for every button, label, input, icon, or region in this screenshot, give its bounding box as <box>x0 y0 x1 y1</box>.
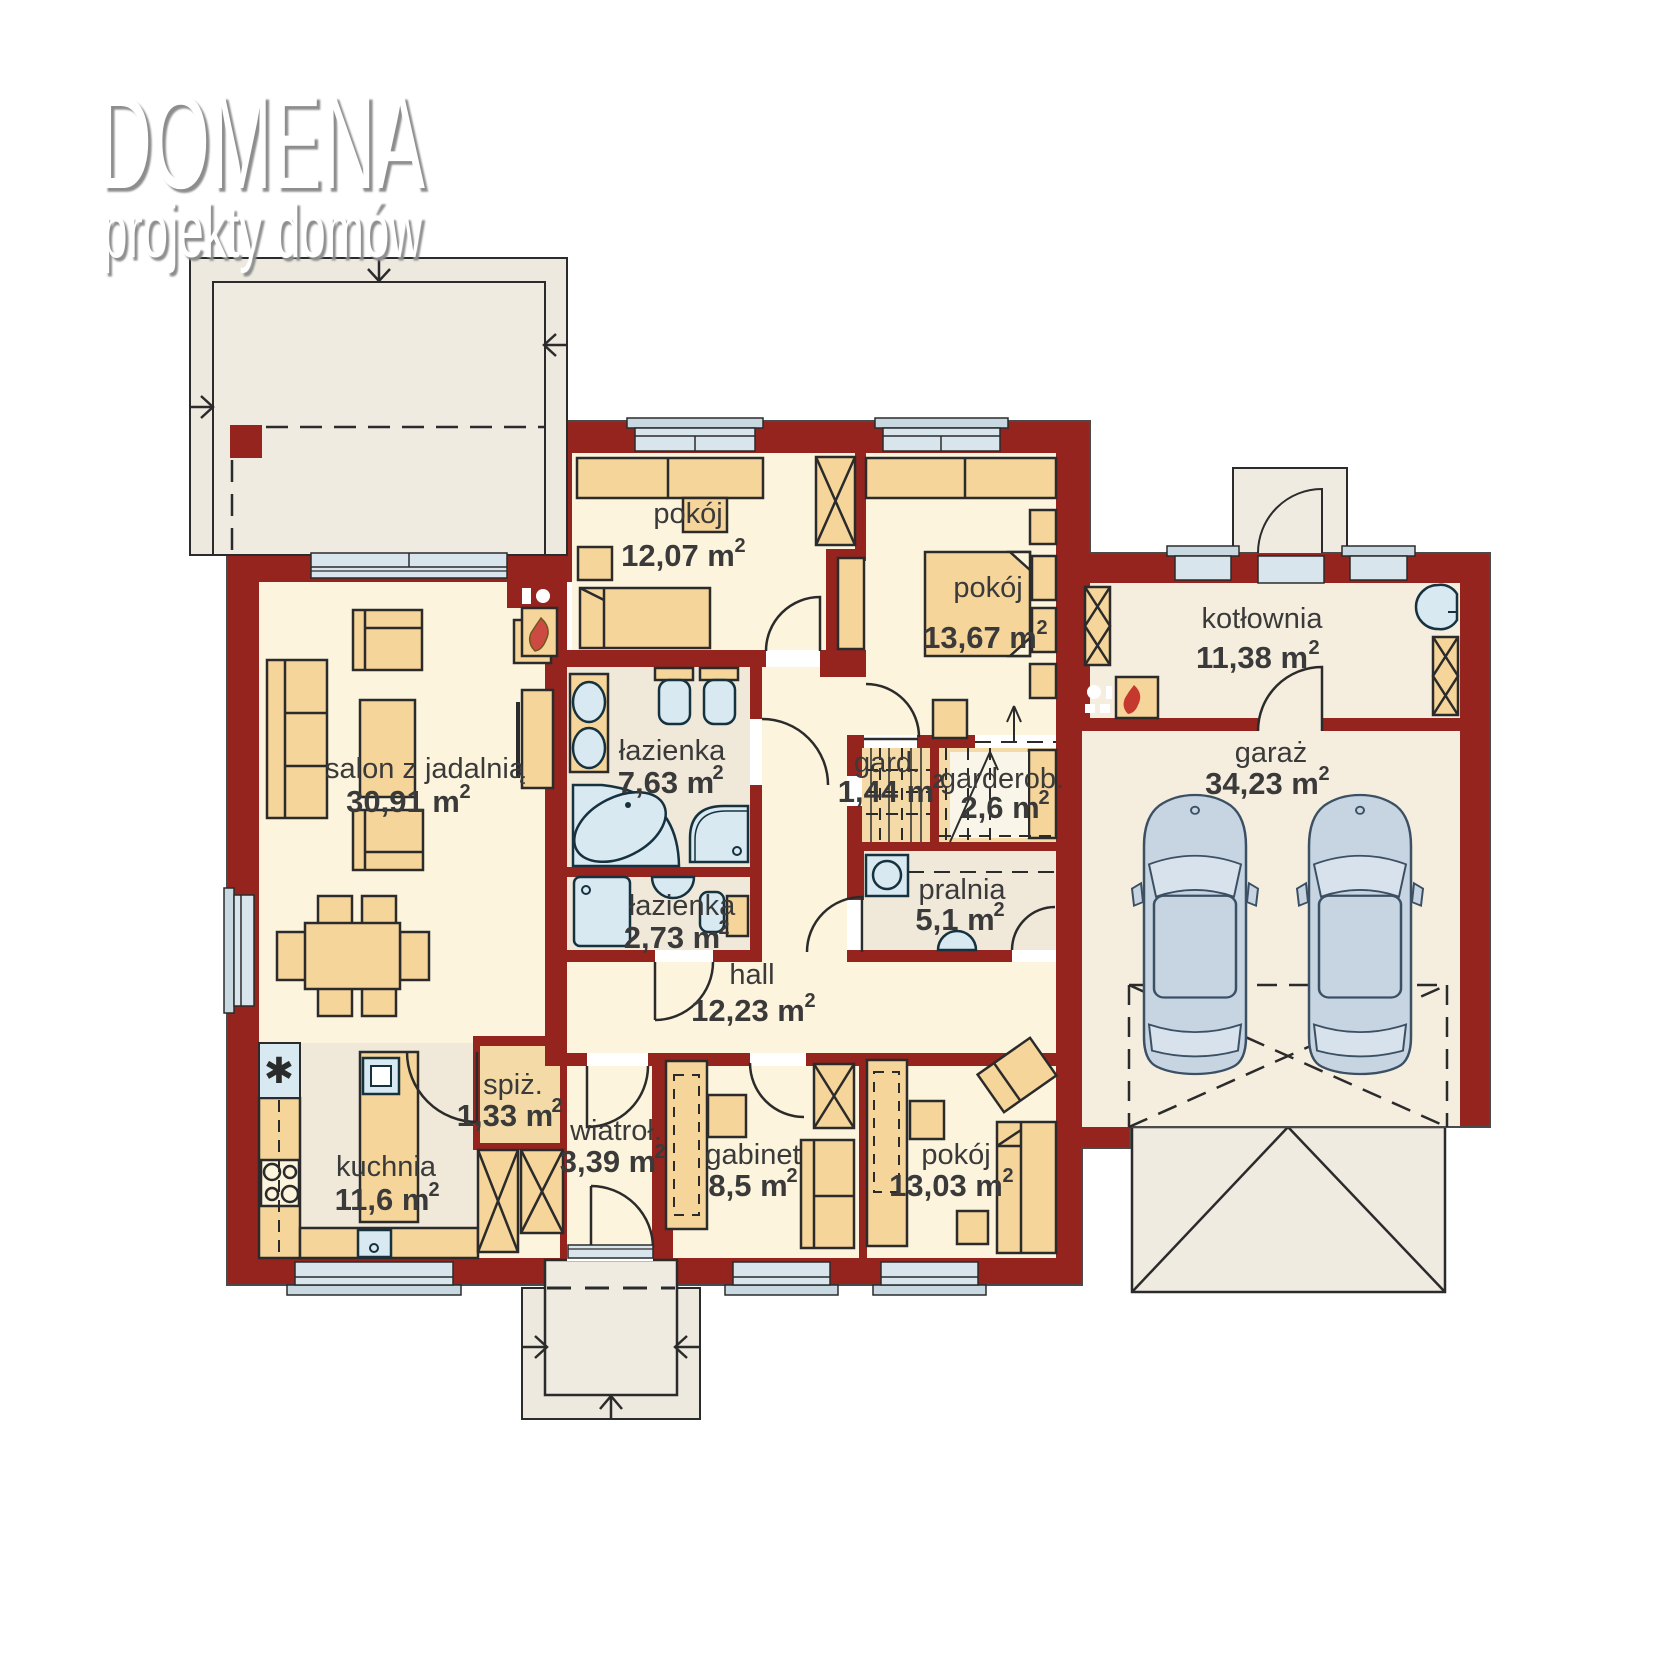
svg-text:8,5 m: 8,5 m <box>708 1168 787 1203</box>
svg-text:7,63 m: 7,63 m <box>618 765 715 800</box>
svg-text:2: 2 <box>718 917 729 939</box>
svg-text:2: 2 <box>734 535 745 557</box>
svg-text:2,73 m: 2,73 m <box>624 920 721 955</box>
svg-text:hall: hall <box>729 959 774 991</box>
svg-text:2: 2 <box>1002 1165 1013 1187</box>
svg-text:12,07 m: 12,07 m <box>621 538 735 573</box>
svg-text:2: 2 <box>1038 787 1049 809</box>
svg-text:2: 2 <box>654 1141 665 1163</box>
svg-text:2: 2 <box>993 899 1004 921</box>
svg-text:kotłownia: kotłownia <box>1202 603 1324 635</box>
svg-text:1,44 m: 1,44 m <box>838 774 935 809</box>
svg-text:salon z jadalnią: salon z jadalnią <box>325 753 526 785</box>
svg-text:wiatroł.: wiatroł. <box>569 1115 662 1147</box>
svg-text:2: 2 <box>551 1095 562 1117</box>
svg-text:garaż: garaż <box>1235 737 1308 769</box>
svg-text:2: 2 <box>1308 637 1319 659</box>
svg-text:2: 2 <box>1318 763 1329 785</box>
svg-text:30,91 m: 30,91 m <box>346 784 460 819</box>
svg-text:11,38 m: 11,38 m <box>1196 640 1308 675</box>
svg-text:34,23 m: 34,23 m <box>1205 766 1319 801</box>
svg-text:pokój: pokój <box>953 572 1022 604</box>
svg-text:2: 2 <box>786 1165 797 1187</box>
svg-text:13,03 m: 13,03 m <box>889 1168 1003 1203</box>
svg-text:2: 2 <box>459 781 470 803</box>
svg-text:2: 2 <box>428 1179 439 1201</box>
svg-text:pokój: pokój <box>653 498 722 530</box>
svg-text:2,6 m: 2,6 m <box>960 790 1039 825</box>
svg-text:13,67 m: 13,67 m <box>923 620 1037 655</box>
svg-text:2: 2 <box>804 990 815 1012</box>
svg-text:2: 2 <box>712 762 723 784</box>
svg-text:łazienka: łazienka <box>619 735 726 767</box>
svg-text:✱: ✱ <box>264 1050 294 1091</box>
svg-text:11,6 m: 11,6 m <box>335 1182 430 1217</box>
svg-text:pokój: pokój <box>921 1139 990 1171</box>
svg-text:5,1 m: 5,1 m <box>915 902 994 937</box>
svg-text:kuchnia: kuchnia <box>336 1151 437 1183</box>
svg-text:2: 2 <box>1036 617 1047 639</box>
svg-text:projekty domów: projekty domów <box>102 189 423 274</box>
svg-text:3,39 m: 3,39 m <box>560 1144 657 1179</box>
svg-text:12,23 m: 12,23 m <box>691 993 805 1028</box>
svg-text:1,33 m: 1,33 m <box>457 1098 554 1133</box>
svg-text:spiż.: spiż. <box>483 1069 543 1101</box>
